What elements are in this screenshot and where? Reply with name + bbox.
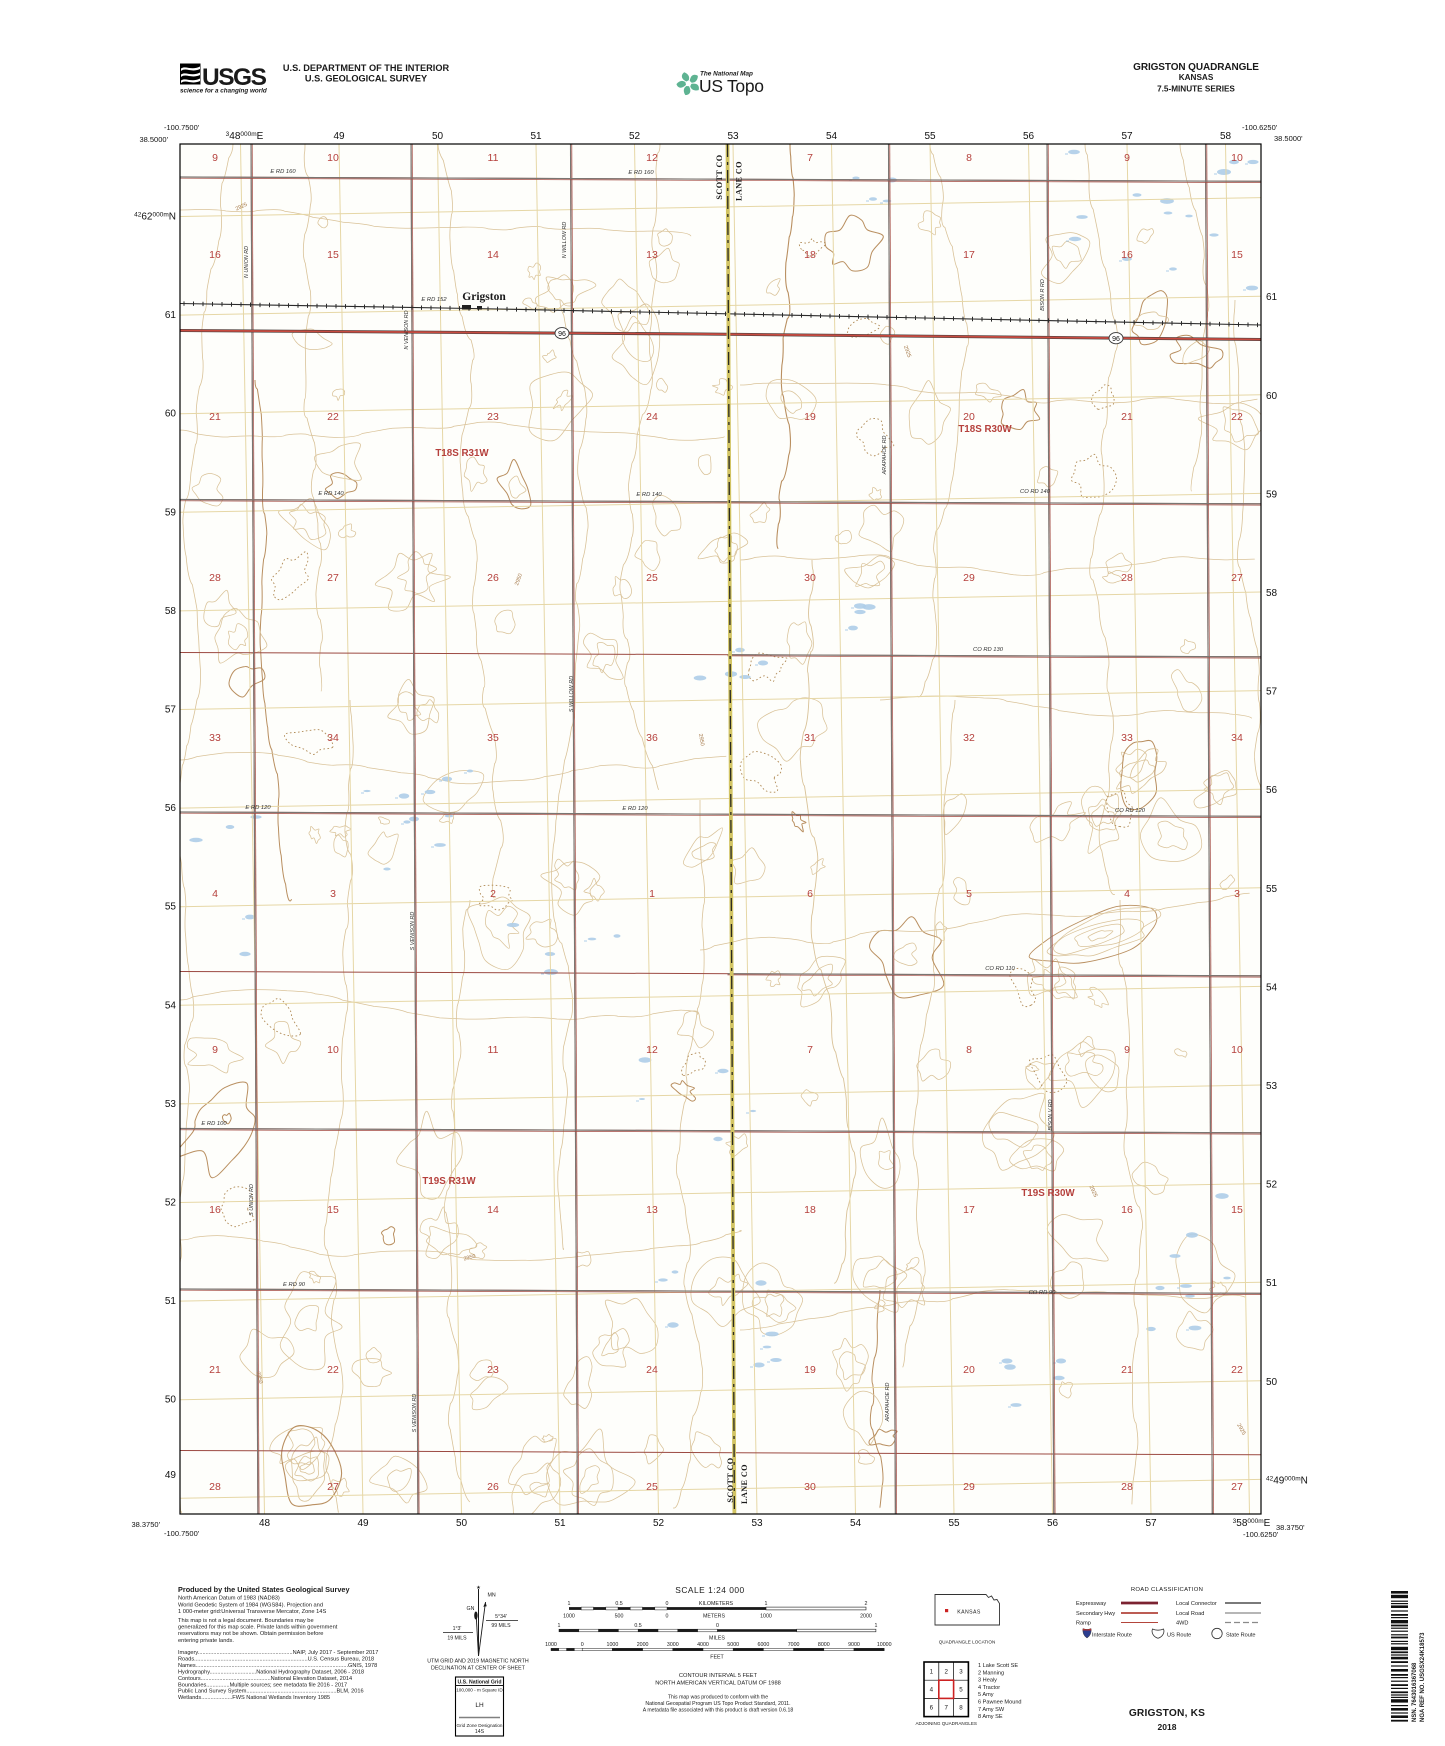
svg-text:52: 52 <box>165 1198 177 1209</box>
svg-text:56: 56 <box>1047 1518 1059 1529</box>
svg-text:49: 49 <box>165 1470 177 1481</box>
svg-text:1000: 1000 <box>607 1642 619 1648</box>
svg-text:-100.7500': -100.7500' <box>164 1529 200 1538</box>
svg-text:16: 16 <box>209 1204 221 1216</box>
svg-text:10: 10 <box>1231 1044 1243 1056</box>
svg-text:54: 54 <box>165 1000 177 1011</box>
svg-text:CO RD 130: CO RD 130 <box>973 647 1004 653</box>
svg-text:28: 28 <box>1121 1481 1133 1493</box>
svg-text:38.5000': 38.5000' <box>1274 134 1303 143</box>
svg-text:5°34': 5°34' <box>495 1614 507 1620</box>
svg-text:2000: 2000 <box>860 1614 872 1620</box>
svg-text:NGA REF NO. USGSX24K18573: NGA REF NO. USGSX24K18573 <box>1420 1632 1426 1722</box>
svg-text:1: 1 <box>930 1668 934 1675</box>
svg-text:World Geodetic System of 1984: World Geodetic System of 1984 (WGS84). P… <box>178 1602 323 1608</box>
svg-text:8000: 8000 <box>818 1642 830 1648</box>
svg-text:2: 2 <box>490 888 496 900</box>
svg-text:2018: 2018 <box>1158 1722 1177 1732</box>
svg-text:METERS: METERS <box>703 1614 726 1620</box>
svg-text:CONTOUR INTERVAL 5 FEET: CONTOUR INTERVAL 5 FEET <box>679 1673 758 1679</box>
svg-text:GRIGSTON, KS: GRIGSTON, KS <box>1129 1708 1205 1719</box>
svg-text:4000: 4000 <box>697 1642 709 1648</box>
svg-text:S UNION RD: S UNION RD <box>249 1184 255 1216</box>
svg-text:3 Healy: 3 Healy <box>978 1678 997 1684</box>
svg-text:CO RD 140: CO RD 140 <box>1020 489 1051 495</box>
svg-text:61: 61 <box>165 310 177 321</box>
svg-text:27: 27 <box>1231 1481 1243 1493</box>
svg-text:3: 3 <box>1234 888 1240 900</box>
svg-text:1000: 1000 <box>545 1642 557 1648</box>
svg-text:9: 9 <box>1124 152 1130 164</box>
svg-text:13: 13 <box>646 249 658 261</box>
svg-text:E RD 140: E RD 140 <box>636 492 662 498</box>
svg-text:50: 50 <box>432 131 444 142</box>
svg-text:31: 31 <box>804 732 816 744</box>
svg-text:CO RD 110: CO RD 110 <box>985 966 1015 972</box>
svg-text:E RD 120: E RD 120 <box>245 805 271 811</box>
svg-text:58: 58 <box>1266 588 1278 599</box>
svg-text:7000: 7000 <box>788 1642 800 1648</box>
svg-text:National Geospatial Program US: National Geospatial Program US Topo Prod… <box>645 1701 790 1707</box>
svg-text:57: 57 <box>1121 131 1133 142</box>
svg-text:21: 21 <box>209 411 221 423</box>
svg-text:1: 1 <box>649 888 655 900</box>
svg-text:16: 16 <box>1121 249 1133 261</box>
svg-text:Names.........................: Names...................................… <box>178 1663 377 1669</box>
svg-text:53: 53 <box>1266 1081 1278 1092</box>
svg-text:33: 33 <box>1121 732 1133 744</box>
svg-text:E RD 100: E RD 100 <box>201 1121 227 1127</box>
svg-text:4 Tractor: 4 Tractor <box>978 1685 1000 1691</box>
svg-text:Interstate Route: Interstate Route <box>1092 1633 1132 1639</box>
svg-text:24: 24 <box>646 1364 658 1376</box>
svg-text:2: 2 <box>944 1668 948 1675</box>
svg-text:25: 25 <box>646 572 658 584</box>
svg-text:LH: LH <box>475 1702 484 1709</box>
svg-text:North American Datum of 1983 (: North American Datum of 1983 (NAD83) <box>178 1596 280 1602</box>
svg-text:A metadata file associated wit: A metadata file associated with this pro… <box>643 1708 794 1714</box>
svg-text:U.S. DEPARTMENT OF THE INTERIO: U.S. DEPARTMENT OF THE INTERIOR <box>283 63 450 73</box>
svg-text:53: 53 <box>751 1518 763 1529</box>
svg-text:0: 0 <box>666 1601 669 1607</box>
svg-text:15: 15 <box>327 1204 339 1216</box>
svg-text:20: 20 <box>963 1364 975 1376</box>
svg-text:T18S R30W: T18S R30W <box>958 424 1012 435</box>
svg-text:11: 11 <box>488 1044 499 1056</box>
svg-text:15: 15 <box>1231 1204 1243 1216</box>
svg-text:4: 4 <box>1124 888 1130 900</box>
svg-text:2: 2 <box>865 1601 868 1607</box>
svg-text:23: 23 <box>487 411 499 423</box>
svg-text:NSN. 7643016367068: NSN. 7643016367068 <box>1412 1662 1418 1722</box>
svg-text:Grigston: Grigston <box>462 291 506 303</box>
svg-text:Produced by the United States: Produced by the United States Geological… <box>178 1585 350 1594</box>
svg-text:6: 6 <box>807 888 813 900</box>
svg-text:ARAPAHOE RD: ARAPAHOE RD <box>885 1382 891 1422</box>
svg-text:60: 60 <box>1266 391 1278 402</box>
svg-text:E RD 160: E RD 160 <box>270 169 296 175</box>
svg-text:52: 52 <box>653 1518 665 1529</box>
svg-text:26: 26 <box>487 572 499 584</box>
svg-text:Boundaries...............Multi: Boundaries...............Multiple source… <box>178 1682 347 1688</box>
svg-text:T18S R31W: T18S R31W <box>435 448 489 459</box>
svg-text:27: 27 <box>1231 572 1243 584</box>
svg-text:34: 34 <box>1231 732 1243 744</box>
svg-text:100,000 - m Square ID: 100,000 - m Square ID <box>456 1688 503 1693</box>
svg-text:55: 55 <box>948 1518 960 1529</box>
svg-text:12: 12 <box>646 152 658 164</box>
svg-text:4: 4 <box>212 888 218 900</box>
svg-text:8: 8 <box>966 152 972 164</box>
svg-text:1000: 1000 <box>760 1614 772 1620</box>
svg-text:S VENISON RD: S VENISON RD <box>410 912 416 951</box>
svg-text:E RD 152: E RD 152 <box>421 297 447 303</box>
svg-text:49: 49 <box>333 131 345 142</box>
svg-text:54: 54 <box>1266 982 1278 993</box>
svg-text:Grid Zone Designation: Grid Zone Designation <box>457 1723 503 1728</box>
svg-text:8: 8 <box>966 1044 972 1056</box>
svg-text:500: 500 <box>615 1614 624 1620</box>
svg-text:1: 1 <box>765 1601 768 1607</box>
svg-text:1: 1 <box>568 1601 571 1607</box>
svg-text:9: 9 <box>212 152 218 164</box>
svg-text:12: 12 <box>646 1044 658 1056</box>
svg-text:56: 56 <box>1023 131 1035 142</box>
svg-text:20: 20 <box>963 411 975 423</box>
svg-text:14: 14 <box>487 1204 499 1216</box>
svg-text:18: 18 <box>804 249 816 261</box>
svg-text:21: 21 <box>1121 411 1133 423</box>
svg-text:38.5000': 38.5000' <box>139 135 168 144</box>
svg-text:16: 16 <box>209 249 221 261</box>
svg-text:1000: 1000 <box>563 1614 575 1620</box>
svg-text:15: 15 <box>327 249 339 261</box>
svg-text:Local Connector: Local Connector <box>1176 1601 1217 1607</box>
svg-text:60: 60 <box>165 409 177 420</box>
svg-text:30: 30 <box>804 572 816 584</box>
svg-text:51: 51 <box>554 1518 566 1529</box>
svg-text:U.S. National Grid: U.S. National Grid <box>457 1680 501 1686</box>
svg-text:science for a changing world: science for a changing world <box>180 88 267 95</box>
svg-text:27: 27 <box>327 1481 339 1493</box>
svg-text:32: 32 <box>963 732 975 744</box>
svg-text:2000: 2000 <box>637 1642 649 1648</box>
svg-text:4: 4 <box>930 1687 934 1694</box>
svg-text:26: 26 <box>487 1481 499 1493</box>
svg-text:28: 28 <box>1121 572 1133 584</box>
svg-text:CO RD 90: CO RD 90 <box>1029 1290 1057 1296</box>
svg-text:15: 15 <box>1231 249 1243 261</box>
svg-text:27: 27 <box>327 572 339 584</box>
svg-text:US Route: US Route <box>1167 1633 1191 1639</box>
svg-text:13: 13 <box>646 1204 658 1216</box>
svg-text:57: 57 <box>165 705 177 716</box>
svg-text:3000: 3000 <box>667 1642 679 1648</box>
svg-text:-100.6250': -100.6250' <box>1243 1530 1279 1539</box>
svg-text:E RD 140: E RD 140 <box>318 491 344 497</box>
svg-text:14: 14 <box>487 249 499 261</box>
svg-text:entering private lands.: entering private lands. <box>178 1638 234 1644</box>
svg-text:30: 30 <box>804 1481 816 1493</box>
svg-text:52: 52 <box>629 131 641 142</box>
svg-text:S VENISON RD: S VENISON RD <box>412 1394 418 1433</box>
svg-text:5: 5 <box>959 1687 963 1694</box>
svg-text:KANSAS: KANSAS <box>1179 73 1214 82</box>
svg-text:5000: 5000 <box>727 1642 739 1648</box>
svg-text:-100.6250': -100.6250' <box>1242 123 1278 132</box>
svg-text:1: 1 <box>875 1623 878 1629</box>
svg-text:35: 35 <box>487 732 499 744</box>
svg-text:Imagery.......................: Imagery.................................… <box>178 1650 378 1656</box>
svg-text:49: 49 <box>357 1518 369 1529</box>
svg-text:T19S R31W: T19S R31W <box>422 1176 476 1187</box>
svg-text:GRIGSTON QUADRANGLE: GRIGSTON QUADRANGLE <box>1133 62 1259 73</box>
svg-text:1°3': 1°3' <box>453 1626 462 1632</box>
svg-text:4WD: 4WD <box>1176 1621 1188 1627</box>
svg-text:59: 59 <box>165 507 177 518</box>
svg-text:57: 57 <box>1266 687 1278 698</box>
svg-text:48: 48 <box>259 1518 271 1529</box>
svg-text:6: 6 <box>930 1705 934 1712</box>
svg-text:36: 36 <box>646 732 658 744</box>
svg-text:22: 22 <box>327 411 339 423</box>
svg-text:10: 10 <box>327 1044 339 1056</box>
svg-text:7: 7 <box>807 1044 813 1056</box>
svg-text:6 Pawnee Mound: 6 Pawnee Mound <box>978 1700 1022 1706</box>
svg-text:State Route: State Route <box>1226 1633 1256 1639</box>
svg-text:BISON R RD: BISON R RD <box>1040 279 1046 311</box>
svg-text:55: 55 <box>1266 884 1278 895</box>
svg-text:5: 5 <box>966 888 972 900</box>
svg-text:Ramp: Ramp <box>1076 1621 1091 1627</box>
svg-text:1: 1 <box>558 1623 561 1629</box>
svg-text:reservations may not be shown.: reservations may not be shown. Obtain pe… <box>178 1631 323 1637</box>
svg-text:53: 53 <box>165 1099 177 1110</box>
svg-text:T19S R30W: T19S R30W <box>1021 1188 1075 1199</box>
svg-text:N UNION RD: N UNION RD <box>244 246 250 278</box>
svg-text:generalized for this map scale: generalized for this map scale. Private … <box>178 1625 338 1631</box>
svg-text:99 MILS: 99 MILS <box>491 1623 511 1629</box>
svg-text:54: 54 <box>826 131 838 142</box>
svg-text:10: 10 <box>327 152 339 164</box>
svg-text:51: 51 <box>530 131 542 142</box>
svg-text:96: 96 <box>1112 336 1120 343</box>
svg-text:7 Amy SW: 7 Amy SW <box>978 1707 1005 1713</box>
svg-text:25: 25 <box>646 1481 658 1493</box>
svg-text:BISON V RD: BISON V RD <box>1048 1099 1054 1130</box>
svg-text:3: 3 <box>959 1668 963 1675</box>
svg-text:19: 19 <box>804 1364 816 1376</box>
svg-text:28: 28 <box>209 572 221 584</box>
svg-text:UTM GRID AND 2019 MAGNETIC NOR: UTM GRID AND 2019 MAGNETIC NORTH <box>427 1659 529 1665</box>
svg-text:MN: MN <box>488 1593 496 1599</box>
svg-text:58: 58 <box>1220 131 1232 142</box>
svg-text:96: 96 <box>558 331 566 338</box>
svg-text:0.5: 0.5 <box>615 1601 622 1607</box>
svg-text:51: 51 <box>1266 1278 1278 1289</box>
svg-text:50: 50 <box>456 1518 468 1529</box>
svg-text:Contours......................: Contours................................… <box>178 1676 352 1682</box>
svg-text:29: 29 <box>963 572 975 584</box>
svg-text:0: 0 <box>581 1642 584 1648</box>
svg-text:This map is not a legal docume: This map is not a legal document. Bounda… <box>178 1618 314 1624</box>
svg-text:6000: 6000 <box>758 1642 770 1648</box>
svg-text:38.3750': 38.3750' <box>1276 1523 1305 1532</box>
svg-text:7: 7 <box>807 152 813 164</box>
svg-text:10: 10 <box>1231 152 1243 164</box>
svg-text:Wetlands....................FW: Wetlands....................FWS National… <box>178 1695 330 1701</box>
svg-text:KANSAS: KANSAS <box>957 1610 981 1616</box>
svg-text:16: 16 <box>1121 1204 1133 1216</box>
svg-text:1 Lake Scott SE: 1 Lake Scott SE <box>978 1663 1018 1669</box>
svg-text:N VENISON RD: N VENISON RD <box>404 310 410 349</box>
svg-text:7: 7 <box>944 1705 948 1712</box>
svg-text:19: 19 <box>804 411 816 423</box>
svg-text:3: 3 <box>330 888 336 900</box>
svg-text:59: 59 <box>1266 489 1278 500</box>
svg-text:22: 22 <box>1231 411 1243 423</box>
svg-text:58: 58 <box>165 606 177 617</box>
svg-text:53: 53 <box>727 131 739 142</box>
svg-text:29: 29 <box>963 1481 975 1493</box>
svg-text:Secondary Hwy: Secondary Hwy <box>1076 1611 1115 1617</box>
svg-text:0: 0 <box>716 1623 719 1629</box>
svg-text:SCOTT CO: SCOTT CO <box>726 1457 735 1502</box>
svg-text:N WILLOW RD: N WILLOW RD <box>562 222 568 259</box>
svg-text:DECLINATION AT CENTER OF SHEET: DECLINATION AT CENTER OF SHEET <box>431 1666 526 1672</box>
svg-text:NORTH AMERICAN VERTICAL DATUM: NORTH AMERICAN VERTICAL DATUM OF 1988 <box>655 1681 781 1687</box>
svg-text:55: 55 <box>165 902 177 913</box>
svg-text:0.5: 0.5 <box>634 1623 641 1629</box>
svg-text:Hydrography...................: Hydrography.............................… <box>178 1669 364 1675</box>
svg-text:S WILLOW RD: S WILLOW RD <box>569 676 575 712</box>
svg-text:33: 33 <box>209 732 221 744</box>
svg-text:LANE CO: LANE CO <box>735 161 744 201</box>
svg-text:2 Manning: 2 Manning <box>978 1670 1004 1676</box>
svg-text:U.S. GEOLOGICAL SURVEY: U.S. GEOLOGICAL SURVEY <box>305 74 427 84</box>
svg-text:E RD 120: E RD 120 <box>622 806 648 812</box>
svg-text:57: 57 <box>1145 1518 1157 1529</box>
svg-text:28: 28 <box>209 1481 221 1493</box>
svg-text:★: ★ <box>476 1585 481 1591</box>
svg-text:Expressway: Expressway <box>1076 1601 1106 1607</box>
svg-text:8 Amy SE: 8 Amy SE <box>978 1714 1003 1720</box>
svg-text:Public Land Survey System..: Public Land Survey System...............… <box>178 1689 364 1695</box>
svg-text:FEET: FEET <box>710 1655 724 1661</box>
svg-text:21: 21 <box>209 1364 221 1376</box>
svg-text:1 000-meter grid:Universal Tra: 1 000-meter grid:Universal Transverse Me… <box>178 1609 326 1615</box>
svg-text:17: 17 <box>963 249 975 261</box>
svg-text:ROAD CLASSIFICATION: ROAD CLASSIFICATION <box>1131 1587 1203 1593</box>
svg-text:US Topo: US Topo <box>699 76 764 96</box>
svg-text:9: 9 <box>212 1044 218 1056</box>
svg-text:56: 56 <box>1266 785 1278 796</box>
svg-text:9: 9 <box>1124 1044 1130 1056</box>
svg-text:22: 22 <box>1231 1364 1243 1376</box>
svg-text:-100.7500': -100.7500' <box>164 123 200 132</box>
svg-text:10000: 10000 <box>877 1642 892 1648</box>
svg-text:56: 56 <box>165 803 177 814</box>
svg-text:7.5-MINUTE SERIES: 7.5-MINUTE SERIES <box>1157 85 1235 94</box>
svg-text:E RD 90: E RD 90 <box>283 1282 306 1288</box>
svg-text:SCALE 1:24 000: SCALE 1:24 000 <box>675 1585 744 1595</box>
svg-text:KILOMETERS: KILOMETERS <box>699 1601 734 1607</box>
svg-text:9000: 9000 <box>848 1642 860 1648</box>
svg-text:24: 24 <box>646 411 658 423</box>
svg-text:ADJOINING QUADRANGLES: ADJOINING QUADRANGLES <box>915 1721 977 1726</box>
svg-text:5 Amy: 5 Amy <box>978 1692 994 1698</box>
svg-text:18: 18 <box>804 1204 816 1216</box>
svg-text:E RD 160: E RD 160 <box>628 170 654 176</box>
svg-text:38.3750': 38.3750' <box>131 1520 160 1529</box>
svg-text:51: 51 <box>165 1296 177 1307</box>
svg-text:QUADRANGLE LOCATION: QUADRANGLE LOCATION <box>939 1640 996 1645</box>
svg-text:21: 21 <box>1121 1364 1133 1376</box>
svg-text:23: 23 <box>487 1364 499 1376</box>
svg-text:11: 11 <box>488 152 499 164</box>
svg-text:8: 8 <box>959 1705 963 1712</box>
svg-text:52: 52 <box>1266 1180 1278 1191</box>
svg-text:54: 54 <box>850 1518 862 1529</box>
svg-text:0: 0 <box>666 1614 669 1620</box>
svg-text:50: 50 <box>1266 1377 1278 1388</box>
svg-text:17: 17 <box>963 1204 975 1216</box>
svg-text:MILES: MILES <box>709 1636 725 1642</box>
svg-text:ARAPAHOE RD: ARAPAHOE RD <box>882 435 888 475</box>
svg-text:61: 61 <box>1266 292 1278 303</box>
svg-text:GN: GN <box>467 1606 475 1612</box>
svg-text:CO RD 120: CO RD 120 <box>1115 808 1146 814</box>
svg-text:Roads.........................: Roads...................................… <box>178 1657 374 1663</box>
svg-text:22: 22 <box>327 1364 339 1376</box>
svg-text:This map was produced to confo: This map was produced to conform with th… <box>668 1695 768 1701</box>
svg-text:34: 34 <box>327 732 339 744</box>
svg-text:LANE CO: LANE CO <box>740 1464 749 1504</box>
svg-text:55: 55 <box>924 131 936 142</box>
svg-text:Local Road: Local Road <box>1176 1611 1204 1617</box>
svg-text:14S: 14S <box>475 1729 485 1735</box>
svg-text:50: 50 <box>165 1395 177 1406</box>
svg-text:19 MILS: 19 MILS <box>447 1636 467 1642</box>
svg-text:SCOTT CO: SCOTT CO <box>715 154 724 199</box>
